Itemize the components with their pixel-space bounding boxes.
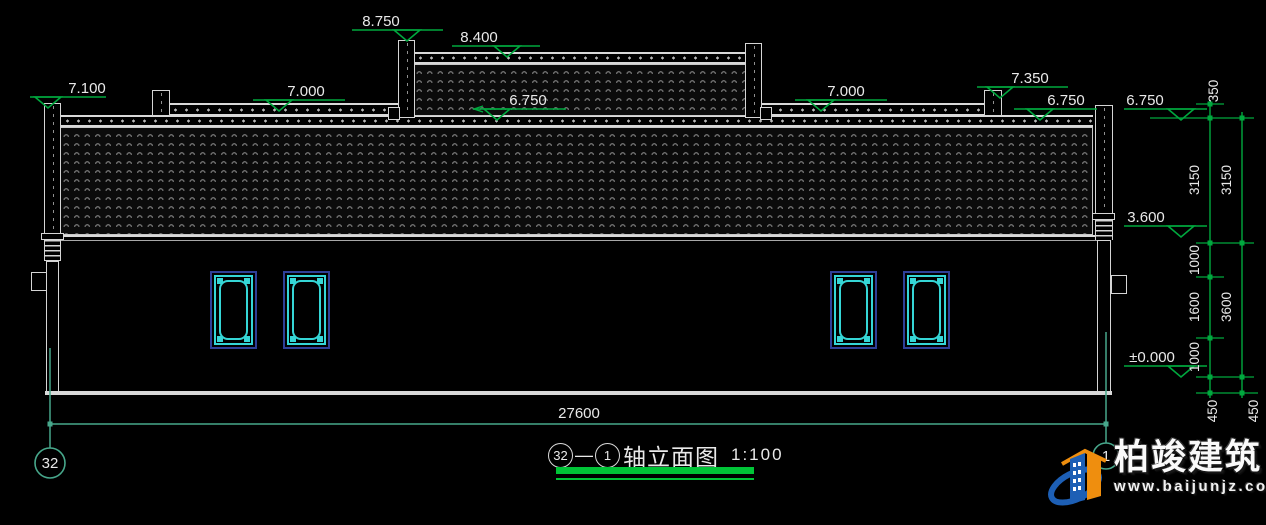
right-lower-column xyxy=(1097,240,1111,392)
dimension-tick xyxy=(1208,375,1213,380)
elevation-marker-triangle xyxy=(1168,226,1194,237)
brand-url: www.baijunjz.com xyxy=(1114,478,1266,495)
elevation-marker-label: 6.750 xyxy=(1047,92,1085,109)
dimension-tick xyxy=(1240,241,1245,246)
right-ridge-band xyxy=(762,103,986,116)
right-column-collar xyxy=(1095,220,1113,240)
elevation-marker-label: 6.750 xyxy=(1126,92,1164,109)
brand-logo: 柏竣建筑 www.baijunjz.com xyxy=(1048,440,1266,508)
elevation-marker-triangle xyxy=(1168,109,1194,120)
dimension-label: 3150 xyxy=(1187,165,1202,195)
elevation-marker-label: 7.000 xyxy=(827,83,865,100)
right-column-cap xyxy=(1092,213,1115,220)
window xyxy=(283,271,330,349)
dimension-tick xyxy=(1208,391,1213,396)
elevation-marker-label: 3.600 xyxy=(1127,209,1165,226)
dimension-label: 450 xyxy=(1205,400,1220,423)
main-roof-eave-band xyxy=(60,115,1093,127)
right-column xyxy=(1095,105,1113,214)
right-ridge-pillar xyxy=(984,90,1002,116)
left-column-bracket xyxy=(31,272,47,291)
dimension-label: 3600 xyxy=(1219,292,1234,322)
left-ridge-band xyxy=(168,103,398,116)
window xyxy=(903,271,950,349)
eave-bottom-edge xyxy=(56,235,1097,241)
central-right-pillar-foot xyxy=(760,107,772,120)
title-axis-end-bubble: 1 xyxy=(595,443,620,468)
brand-logo-text: 柏竣建筑 www.baijunjz.com xyxy=(1114,440,1266,495)
left-column-cap xyxy=(41,233,64,240)
title-dash: — xyxy=(575,445,593,466)
axis-bubble-label: 32 xyxy=(42,455,59,472)
window-opening xyxy=(912,280,941,340)
title-underline-thick xyxy=(556,467,754,474)
elevation-marker-label: ±0.000 xyxy=(1129,349,1175,366)
dimension-tick xyxy=(1208,241,1213,246)
dimension-label: 450 xyxy=(1246,400,1261,423)
window-frame xyxy=(287,275,326,345)
dimension-tick xyxy=(1104,422,1109,427)
central-roof-tile-field xyxy=(413,64,747,116)
dimension-label: 350 xyxy=(1206,80,1221,103)
dimension-label: 1600 xyxy=(1187,292,1202,322)
window xyxy=(210,271,257,349)
window-opening xyxy=(839,280,868,340)
dimension-tick xyxy=(1208,116,1213,121)
ground-line xyxy=(45,391,1112,395)
title-axis-start-bubble: 32 xyxy=(548,443,573,468)
left-parapet-column xyxy=(44,103,61,234)
left-column-collar xyxy=(44,240,61,261)
elevation-marker-label: 7.000 xyxy=(287,83,325,100)
dimension-label: 3150 xyxy=(1219,165,1234,195)
right-column-bracket xyxy=(1111,275,1127,294)
drawing-scale: 1:100 xyxy=(731,445,784,465)
overall-dimension-label: 27600 xyxy=(558,405,600,422)
elevation-marker-label: 8.750 xyxy=(362,13,400,30)
window-frame xyxy=(214,275,253,345)
central-left-pillar-foot xyxy=(388,107,400,120)
central-left-pillar xyxy=(398,40,415,118)
window-opening xyxy=(292,280,321,340)
central-ridge-band xyxy=(413,52,747,64)
dimension-tick xyxy=(1208,336,1213,341)
window-opening xyxy=(219,280,248,340)
dimension-label: 1000 xyxy=(1187,245,1202,275)
brand-name: 柏竣建筑 xyxy=(1114,440,1266,477)
dimension-label: 1000 xyxy=(1187,342,1202,372)
brand-logo-icon xyxy=(1048,440,1112,508)
title-underline-thin xyxy=(556,478,754,480)
dimension-tick xyxy=(48,422,53,427)
window-frame xyxy=(907,275,946,345)
dimension-tick xyxy=(1240,116,1245,121)
left-ridge-pillar xyxy=(152,90,170,116)
dimension-tick xyxy=(1240,391,1245,396)
window xyxy=(830,271,877,349)
window-frame xyxy=(834,275,873,345)
left-lower-column xyxy=(46,261,59,392)
elevation-marker-label: 7.350 xyxy=(1011,70,1049,87)
elevation-marker-triangle xyxy=(1168,366,1194,377)
main-roof-tile-field xyxy=(60,127,1093,235)
axis-bubble xyxy=(35,448,65,478)
elevation-marker-label: 7.100 xyxy=(68,80,106,97)
dimension-tick xyxy=(1208,102,1213,107)
dimension-tick xyxy=(1240,375,1245,380)
dimension-tick xyxy=(1208,275,1213,280)
elevation-drawing-canvas: 7.1008.7508.4007.0006.7507.0007.3506.750… xyxy=(0,0,1266,525)
elevation-marker-label: 8.400 xyxy=(460,29,498,46)
